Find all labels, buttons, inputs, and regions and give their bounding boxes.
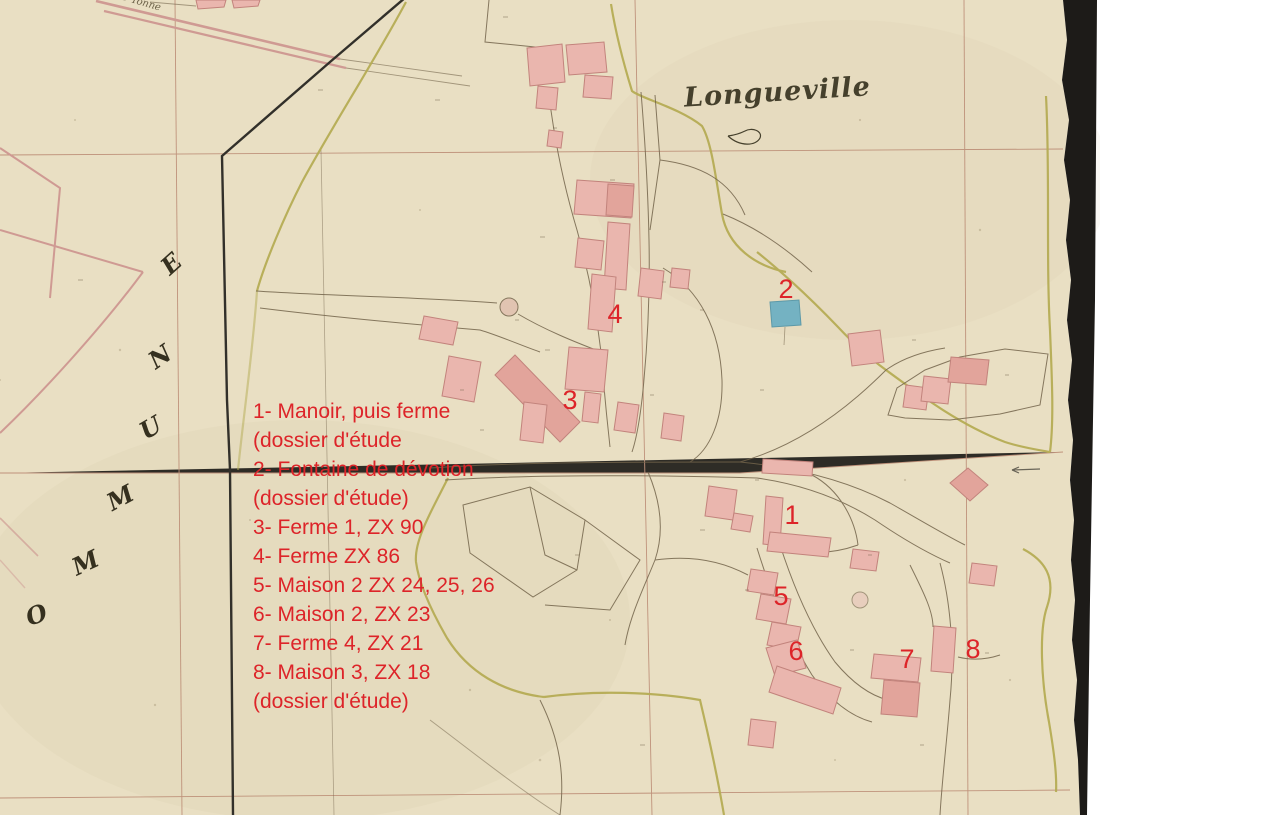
- pond: [500, 298, 518, 316]
- map-marker-7: 7: [899, 646, 914, 673]
- legend-line: 2- Fontaine de dévotion: [253, 455, 495, 484]
- legend-line: 3- Ferme 1, ZX 90: [253, 513, 495, 542]
- map-marker-6: 6: [788, 638, 803, 665]
- map-marker-1: 1: [784, 502, 799, 529]
- legend-annotation: 1- Manoir, puis ferme(dossier d'étude2- …: [253, 397, 495, 716]
- map-viewport: Longueville D'Yonne OMMUNE 12345678 1- M…: [0, 0, 1269, 815]
- legend-line: (dossier d'étude): [253, 484, 495, 513]
- legend-line: (dossier d'étude): [253, 687, 495, 716]
- map-marker-8: 8: [965, 636, 980, 663]
- legend-line: 8- Maison 3, ZX 18: [253, 658, 495, 687]
- map-marker-3: 3: [562, 387, 577, 414]
- legend-line: (dossier d'étude: [253, 426, 495, 455]
- paper-stain: [590, 20, 1100, 340]
- legend-line: 5- Maison 2 ZX 24, 25, 26: [253, 571, 495, 600]
- map-marker-2: 2: [778, 276, 793, 303]
- cadastral-map-drawing: [0, 0, 1100, 815]
- pond: [852, 592, 868, 608]
- legend-line: 4- Ferme ZX 86: [253, 542, 495, 571]
- legend-line: 6- Maison 2, ZX 23: [253, 600, 495, 629]
- legend-line: 7- Ferme 4, ZX 21: [253, 629, 495, 658]
- map-marker-4: 4: [607, 301, 622, 328]
- legend-line: 1- Manoir, puis ferme: [253, 397, 495, 426]
- map-marker-5: 5: [773, 583, 788, 610]
